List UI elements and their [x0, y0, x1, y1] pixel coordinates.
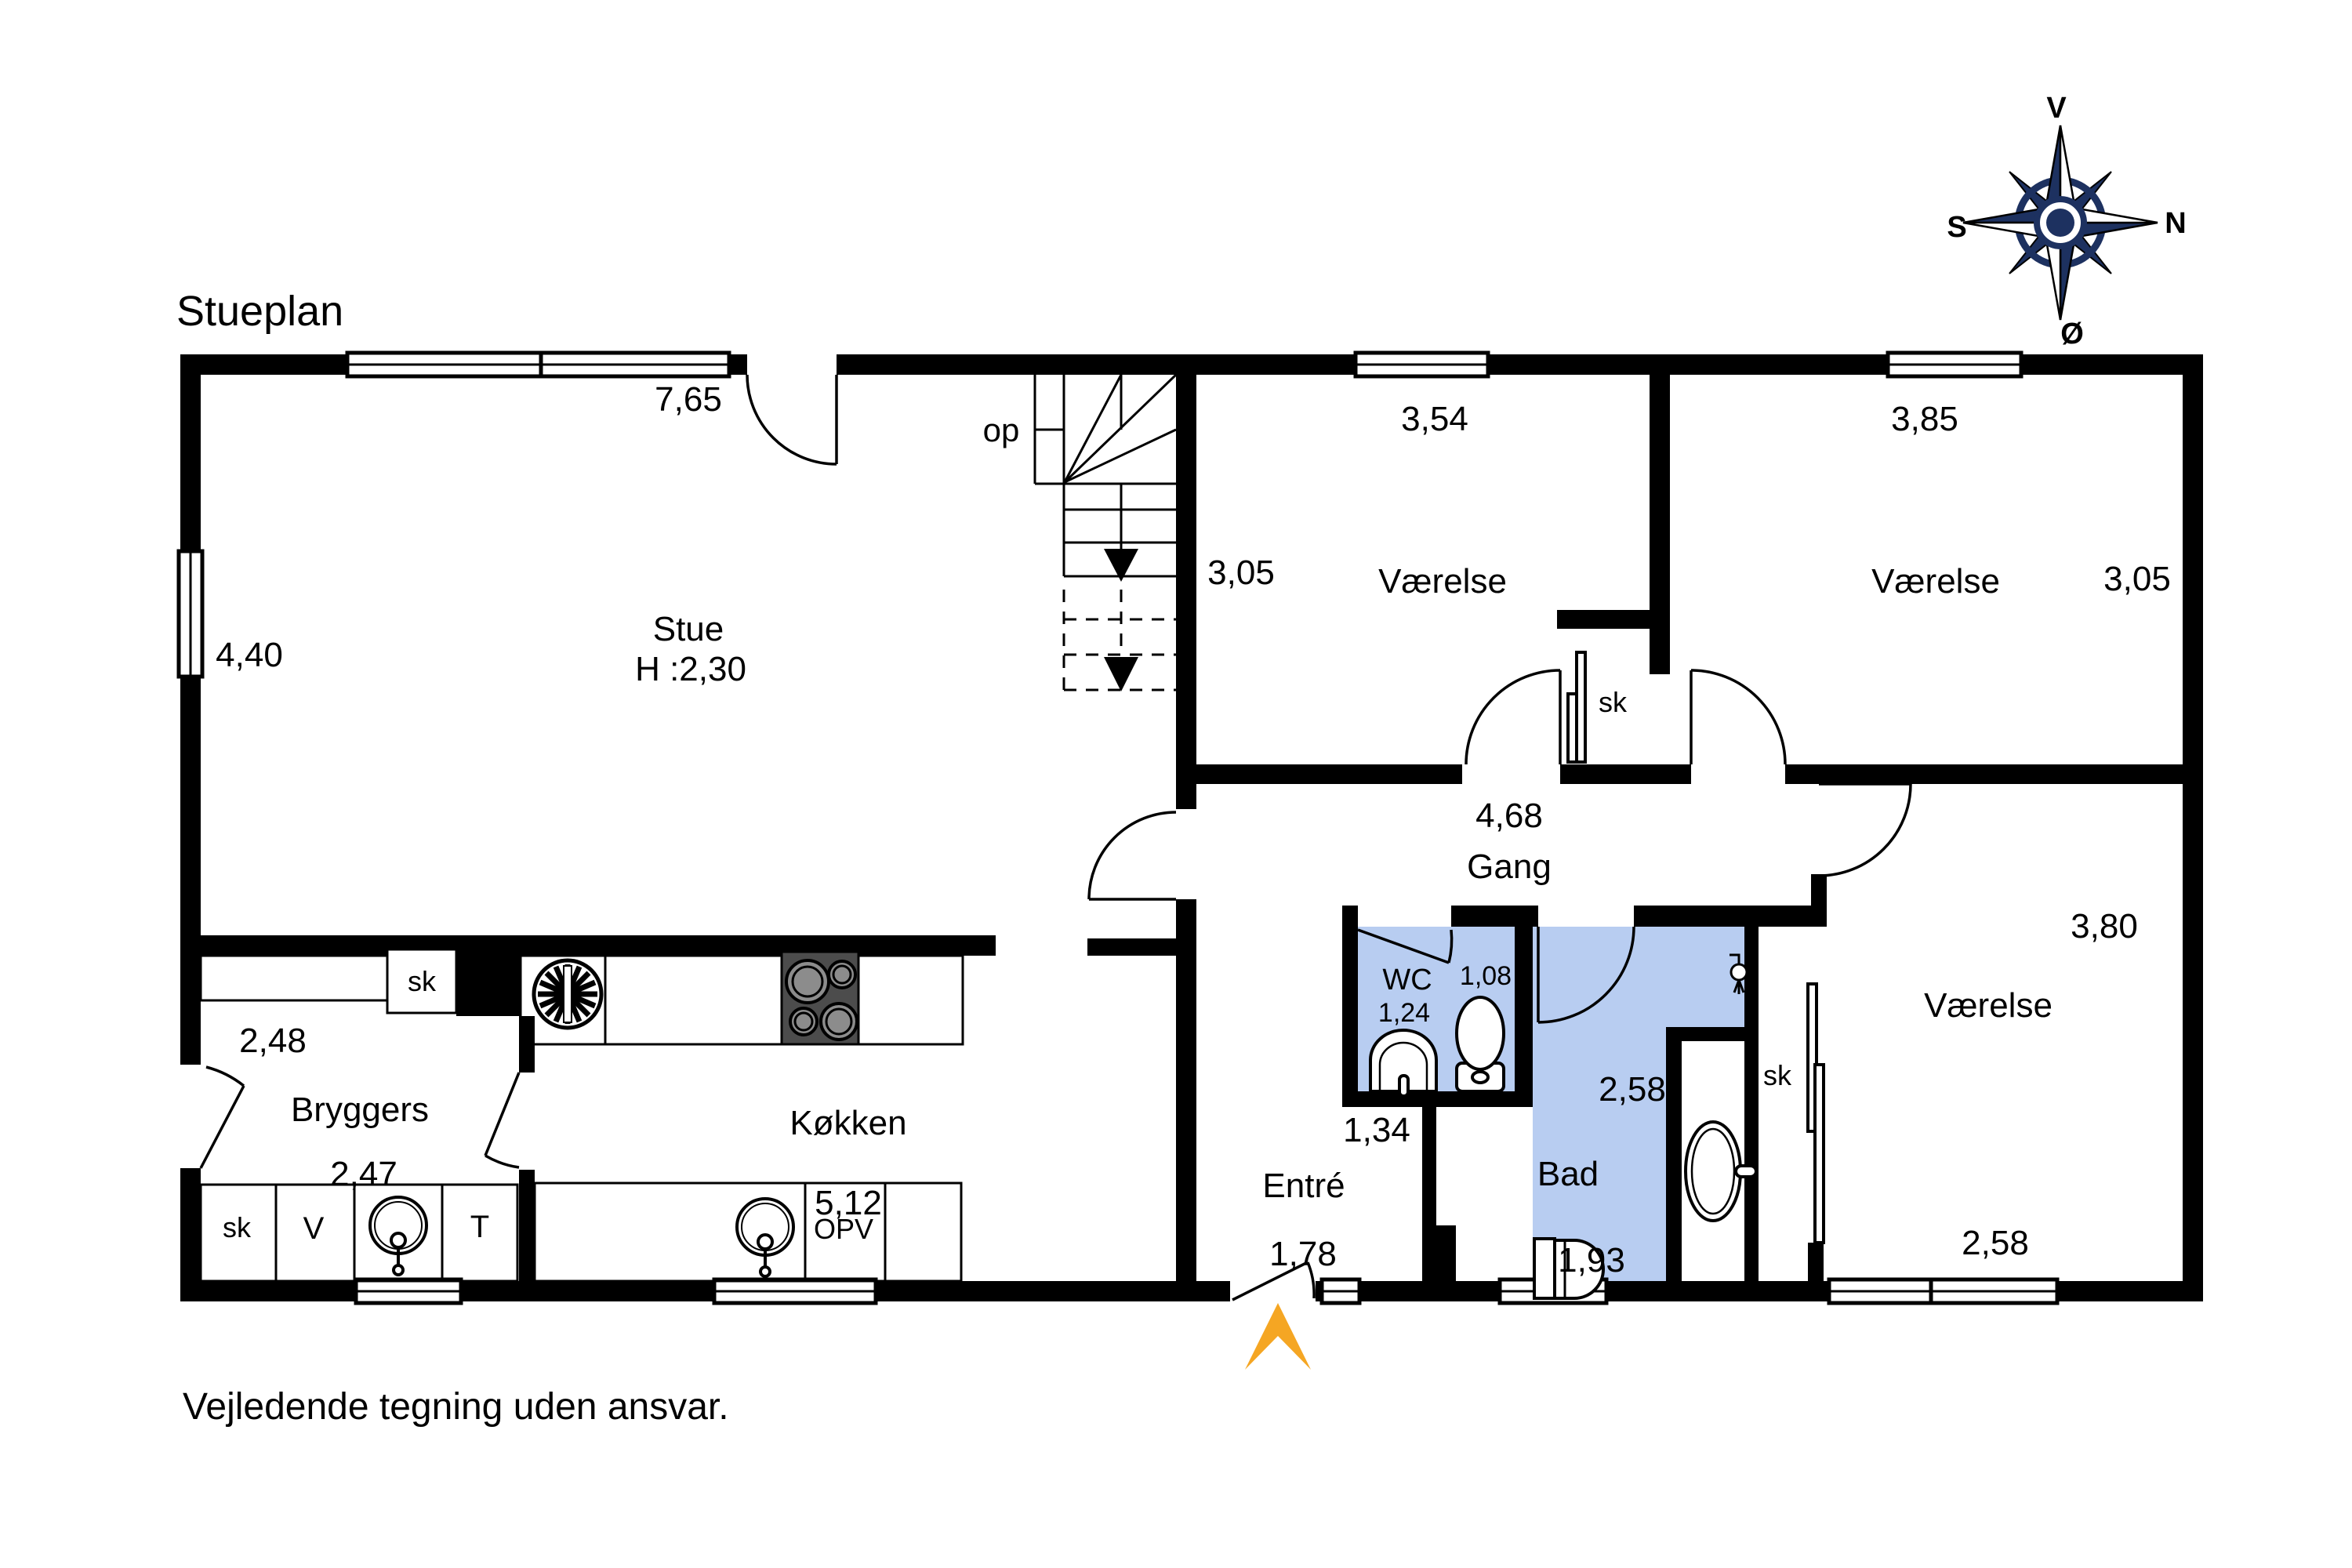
compass-north-label: N	[2165, 207, 2186, 240]
closet-utility-label: sk	[223, 1211, 252, 1243]
wall-gang-south-c	[1634, 906, 1827, 927]
wall-stue-kitchen	[201, 935, 996, 956]
wall-bad-east	[1666, 1041, 1682, 1281]
room-wc-label: WC	[1382, 964, 1432, 996]
wall-gang-north-a	[1176, 764, 1462, 784]
room-gang-label: Gang	[1467, 848, 1552, 886]
dim-bad-width: 2,58	[1599, 1070, 1666, 1109]
dim-wc-depth: 1,24	[1378, 998, 1430, 1028]
window-vaerelse-right-top	[1888, 353, 2021, 376]
room-stue-label: Stue	[653, 610, 724, 648]
wc-toilet-icon	[1457, 997, 1504, 1091]
wall-bryggers-divider-bottom	[519, 1170, 535, 1281]
disclaimer: Vejledende tegning uden ansvar.	[183, 1386, 729, 1428]
compass-east-label: Ø	[2060, 318, 2084, 350]
dim-stue-width: 7,65	[655, 380, 722, 419]
window-bryggers-bottom	[356, 1279, 461, 1303]
room-vaerelse-br-label: Værelse	[1924, 986, 2053, 1025]
dryer-label: T	[470, 1210, 489, 1244]
wall-bryggers-block	[456, 949, 521, 1016]
room-vaerelse-tr-label: Værelse	[1871, 562, 2000, 601]
stove-icon	[782, 952, 858, 1044]
wall-bad-niche-top	[1666, 1027, 1744, 1041]
extractor-fan-icon	[534, 960, 601, 1028]
wall-outer-right	[2183, 354, 2203, 1301]
washer-label: V	[303, 1211, 325, 1246]
dim-entre-depth: 1,78	[1269, 1235, 1337, 1273]
wall-wc-east	[1515, 927, 1533, 1107]
wall-gang-north-c	[1785, 764, 2183, 784]
wall-br-closet-stub	[1808, 1243, 1824, 1281]
closet-bryggers-label: sk	[408, 965, 437, 997]
dim-bryggers-width2: 2,47	[330, 1155, 397, 1193]
compass-west-label: V	[2046, 92, 2067, 125]
wall-hall-west	[1176, 899, 1196, 1281]
opening-front-door	[1230, 1281, 1316, 1301]
dim-vaerelse-mid-width: 3,54	[1401, 400, 1468, 438]
room-bryggers-label: Bryggers	[291, 1091, 429, 1129]
dim-stue-depth: 4,40	[216, 636, 283, 674]
dim-wc-width: 1,08	[1460, 961, 1512, 991]
wall-stair	[1176, 375, 1196, 809]
closet-right-label: sk	[1763, 1059, 1792, 1091]
closet-mid-label: sk	[1599, 686, 1628, 718]
dim-gang-width: 4,68	[1475, 797, 1543, 835]
floor-plan: V N S Ø Stueplan Vejledende tegning uden…	[0, 0, 2352, 1568]
room-bad-label: Bad	[1537, 1155, 1599, 1193]
closet-door-right-2	[1815, 1065, 1824, 1243]
room-entre-label: Entré	[1262, 1167, 1345, 1205]
compass-south-label: S	[1947, 211, 1966, 244]
wall-entre-east	[1422, 1107, 1436, 1281]
opening-terrace-door	[747, 354, 837, 375]
window-stue-top	[347, 353, 729, 376]
dim-bad-depth: 1,93	[1558, 1241, 1625, 1279]
dim-vaerelse-br-width: 2,58	[1962, 1224, 2029, 1262]
wall-gang-south-b	[1451, 906, 1538, 927]
wall-entre-east-pier	[1436, 1225, 1456, 1281]
window-vaerelse-mid-top	[1356, 353, 1488, 376]
wall-br-door-stub	[1811, 874, 1827, 927]
dim-bryggers-width: 2,48	[239, 1022, 307, 1060]
wc-sink-icon	[1370, 1030, 1436, 1096]
wall-niche-closet-divider	[1744, 927, 1759, 1281]
dim-vaerelse-br-depth: 3,80	[2071, 907, 2138, 946]
window-stue-left	[179, 551, 202, 677]
dim-vaerelse-mid-depth: 3,05	[1207, 554, 1275, 592]
dim-vaerelse-tr-width: 3,85	[1891, 400, 1958, 438]
wall-stue-kitchen-stub	[1087, 938, 1176, 956]
wall-wc-south	[1342, 1091, 1533, 1107]
window-koekken-bottom	[714, 1279, 876, 1303]
dim-entre-width: 1,34	[1343, 1111, 1410, 1149]
room-koekken-label: Køkken	[789, 1104, 906, 1142]
window-vaerelse-br-bottom	[1829, 1279, 2057, 1303]
page-title: Stueplan	[176, 288, 343, 335]
wall-gang-north-b	[1560, 764, 1691, 784]
stairs-up-label: op	[983, 412, 1020, 448]
room-stue-ceiling: H :2,30	[635, 650, 746, 688]
opening-bryggers-door	[180, 1065, 201, 1168]
wall-bedroom-divider	[1650, 375, 1670, 674]
dishwasher-label: OPV	[814, 1213, 873, 1245]
dim-vaerelse-tr-depth: 3,05	[2103, 560, 2171, 598]
wall-wc-west	[1342, 927, 1358, 1107]
room-vaerelse-mid-label: Værelse	[1378, 562, 1507, 601]
wall-gang-south-a	[1342, 906, 1358, 927]
wall-closet-niche-top	[1557, 610, 1670, 629]
closet-door-mid-2	[1568, 694, 1577, 762]
window-entre-bottom	[1322, 1279, 1359, 1303]
